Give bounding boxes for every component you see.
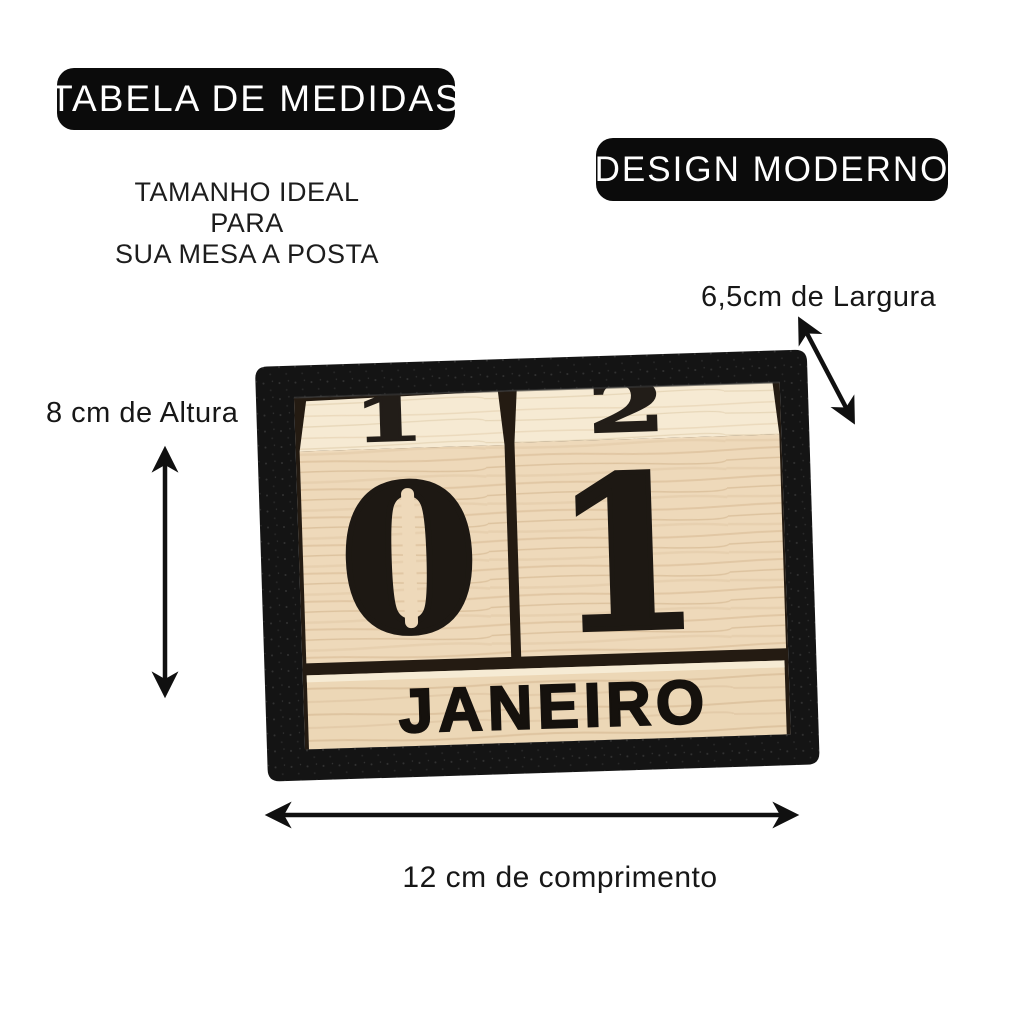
size-table-badge: TABELA DE MEDIDAS: [57, 68, 455, 130]
subtitle: TAMANHO IDEAL PARA SUA MESA A POSTA: [96, 177, 398, 270]
front-right-digit: 1: [550, 429, 704, 680]
modern-design-badge: DESIGN MODERNO: [596, 138, 948, 201]
block-calendar-image: 1 2 0 1 JANEIRO: [242, 329, 836, 799]
width-dimension-label: 6,5cm de Largura: [701, 281, 936, 314]
subtitle-line-2: SUA MESA A POSTA: [96, 239, 398, 270]
measurement-infographic: TABELA DE MEDIDAS DESIGN MODERNO TAMANHO…: [0, 0, 1024, 1024]
month-label: JANEIRO: [397, 668, 710, 747]
subtitle-line-1: TAMANHO IDEAL PARA: [96, 177, 398, 239]
length-dimension-label: 12 cm de comprimento: [310, 861, 810, 895]
height-dimension-label: 8 cm de Altura: [46, 397, 238, 430]
